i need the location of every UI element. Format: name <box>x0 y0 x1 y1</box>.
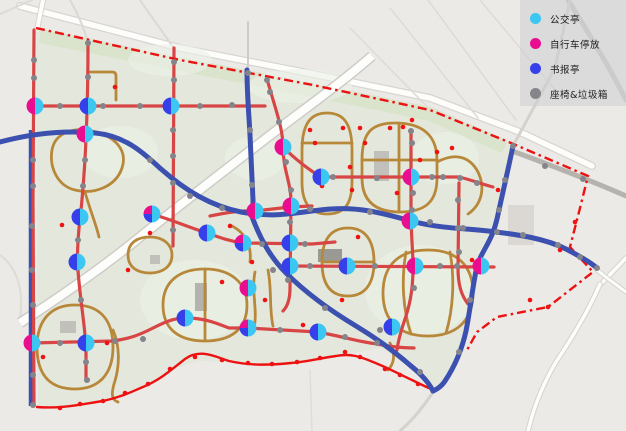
bench-trash-dot <box>409 207 415 213</box>
bench-trash-dot <box>437 263 443 269</box>
bicycle-parking-dot <box>246 361 251 366</box>
bench-trash-dot <box>30 157 36 163</box>
bench-trash-dot <box>170 127 176 133</box>
map-legend: 公交亭 自行车停放 书报亭 座椅&垃圾箱 <box>520 0 626 106</box>
bench-trash-dot <box>267 89 273 95</box>
park-facilities-map-page: 公交亭 自行车停放 书报亭 座椅&垃圾箱 <box>0 0 626 431</box>
bench-trash-dot <box>457 175 463 181</box>
bicycle-parking-icon <box>530 38 541 49</box>
bench-trash-dot <box>75 237 81 243</box>
bench-trash-dot <box>455 197 461 203</box>
bicycle-parking-dot <box>450 146 455 151</box>
bench-trash-dot <box>170 180 176 186</box>
bench-trash-dot <box>410 190 416 196</box>
facility-marker-bc[interactable] <box>384 319 401 336</box>
bicycle-parking-dot <box>435 150 440 155</box>
bicycle-parking-dot <box>146 382 151 387</box>
bicycle-parking-dot <box>123 391 128 396</box>
bicycle-parking-dot <box>295 360 300 365</box>
facility-marker-bc[interactable] <box>313 169 330 186</box>
bench-trash-dot <box>249 182 255 188</box>
bench-trash-dot <box>322 305 328 311</box>
park-field <box>128 44 212 76</box>
bench-trash-dot <box>84 377 90 383</box>
facility-marker-bc[interactable] <box>163 98 180 115</box>
bench-trash-dot <box>30 402 36 408</box>
bicycle-parking-dot <box>313 141 318 146</box>
bench-trash-dot <box>78 297 84 303</box>
bicycle-parking-dot <box>573 220 578 225</box>
bench-trash-dot <box>307 263 313 269</box>
bicycle-parking-dot <box>270 362 275 367</box>
bicycle-parking-dot <box>558 248 563 253</box>
facility-marker-bc[interactable] <box>72 209 89 226</box>
bicycle-parking-dot <box>363 141 368 146</box>
bench-trash-dot <box>580 176 586 182</box>
bicycle-parking-dot <box>398 373 403 378</box>
bicycle-parking-dot <box>168 367 173 372</box>
bicycle-parking-dot <box>263 298 268 303</box>
bench-trash-dot <box>30 302 36 308</box>
legend-label: 公交亭 <box>550 12 580 26</box>
bicycle-parking-dot <box>358 126 363 131</box>
bench-trash-dot <box>494 229 500 235</box>
bicycle-parking-dot <box>220 358 225 363</box>
building <box>150 255 160 264</box>
bench-trash-dot <box>429 174 435 180</box>
bench-trash-icon <box>530 88 541 99</box>
bench-trash-dot <box>456 249 462 255</box>
bench-trash-dot <box>440 174 446 180</box>
bench-trash-dot <box>367 209 373 215</box>
bench-trash-dot <box>409 140 415 146</box>
legend-label: 自行车停放 <box>550 37 600 51</box>
bench-trash-dot <box>520 232 526 238</box>
bench-trash-dot <box>283 159 289 165</box>
facility-marker-bc[interactable] <box>282 258 299 275</box>
bicycle-parking-dot <box>220 280 225 285</box>
bench-trash-dot <box>374 340 380 346</box>
bench-trash-dot <box>29 223 35 229</box>
bench-trash-dot <box>264 77 270 83</box>
bench-trash-dot <box>577 254 583 260</box>
bicycle-parking-dot <box>341 126 346 131</box>
bench-trash-dot <box>374 175 380 181</box>
facility-marker-mc[interactable] <box>473 258 490 275</box>
legend-item-newsstand: 书报亭 <box>530 56 626 81</box>
bicycle-parking-dot <box>343 350 348 355</box>
bench-trash-dot <box>100 103 106 109</box>
bench-trash-dot <box>171 77 177 83</box>
facility-marker-mc[interactable] <box>240 280 257 297</box>
bicycle-parking-dot <box>395 191 400 196</box>
legend-label: 座椅&垃圾箱 <box>550 87 608 101</box>
bench-trash-dot <box>302 241 308 247</box>
bench-trash-dot <box>456 349 462 355</box>
bench-trash-dot <box>330 174 336 180</box>
bicycle-parking-dot <box>301 323 306 328</box>
bus-kiosk-icon <box>530 13 541 24</box>
bicycle-parking-dot <box>383 367 388 372</box>
bicycle-parking-dot <box>418 158 423 163</box>
facility-marker-mbc[interactable] <box>240 320 257 337</box>
bench-trash-dot <box>460 225 466 231</box>
bicycle-parking-dot <box>340 298 345 303</box>
bicycle-parking-dot <box>101 399 106 404</box>
legend-item-bicycle-parking: 自行车停放 <box>530 31 626 56</box>
bench-trash-dot <box>247 127 253 133</box>
building <box>60 321 76 333</box>
bench-trash-dot <box>29 267 35 273</box>
facility-marker-mc[interactable] <box>77 126 94 143</box>
bicycle-parking-dot <box>193 355 198 360</box>
facility-marker-mc[interactable] <box>275 139 292 156</box>
bench-trash-dot <box>377 327 383 333</box>
bench-trash-dot <box>147 157 153 163</box>
tan-path <box>254 272 256 328</box>
facility-marker-mc[interactable] <box>403 169 420 186</box>
bench-trash-dot <box>342 334 348 340</box>
bicycle-parking-dot <box>356 235 361 240</box>
facility-marker-bc[interactable] <box>80 98 97 115</box>
bench-trash-dot <box>411 285 417 291</box>
bicycle-parking-dot <box>528 298 533 303</box>
bicycle-parking-dot <box>78 402 83 407</box>
bicycle-parking-dot <box>388 126 393 131</box>
facility-marker-mc[interactable] <box>24 335 41 352</box>
bicycle-parking-dot <box>350 188 355 193</box>
legend-item-bus-kiosk: 公交亭 <box>530 6 626 31</box>
bench-trash-dot <box>372 263 378 269</box>
bench-trash-dot <box>467 297 473 303</box>
bicycle-parking-dot <box>348 165 353 170</box>
bicycle-parking-dot <box>410 118 415 123</box>
bench-trash-dot <box>259 241 265 247</box>
bench-trash-dot <box>277 327 283 333</box>
bench-trash-dot <box>30 183 36 189</box>
facility-marker-mc[interactable] <box>247 203 264 220</box>
facility-marker-mc[interactable] <box>407 258 424 275</box>
facility-marker-bc[interactable] <box>339 258 356 275</box>
facility-marker-bc[interactable] <box>282 235 299 252</box>
facility-marker-bc[interactable] <box>69 254 86 271</box>
legend-label: 书报亭 <box>550 62 580 76</box>
red-road <box>288 266 494 267</box>
bicycle-parking-dot <box>126 268 131 273</box>
bench-trash-dot <box>510 143 516 149</box>
bench-trash-dot <box>417 369 423 375</box>
bench-trash-dot <box>219 205 225 211</box>
bicycle-parking-dot <box>401 125 406 130</box>
facility-marker-bc[interactable] <box>177 310 194 327</box>
bench-trash-dot <box>427 219 433 225</box>
facility-marker-bc[interactable] <box>310 324 327 341</box>
bench-trash-dot <box>287 219 293 225</box>
bench-trash-dot <box>82 157 88 163</box>
bicycle-parking-dot <box>60 223 65 228</box>
bench-trash-dot <box>85 74 91 80</box>
bench-trash-dot <box>555 242 561 248</box>
bench-trash-dot <box>454 263 460 269</box>
bicycle-parking-dot <box>546 305 551 310</box>
newsstand-icon <box>530 63 541 74</box>
bench-trash-dot <box>112 338 118 344</box>
bench-trash-dot <box>307 206 313 212</box>
bench-trash-dot <box>31 75 37 81</box>
facility-marker-bc[interactable] <box>199 225 216 242</box>
bicycle-parking-dot <box>58 406 63 411</box>
bench-trash-dot <box>542 163 548 169</box>
bench-trash-dot <box>594 265 600 271</box>
bench-trash-dot <box>170 153 176 159</box>
bicycle-parking-dot <box>416 382 421 387</box>
bench-trash-dot <box>31 57 37 63</box>
bicycle-parking-dot <box>470 258 475 263</box>
bench-trash-dot <box>171 59 177 65</box>
bicycle-parking-dot <box>308 128 313 133</box>
bench-trash-dot <box>502 177 508 183</box>
bicycle-parking-dot <box>228 224 233 229</box>
bicycle-parking-dot <box>113 85 118 90</box>
bicycle-parking-dot <box>250 260 255 265</box>
bench-trash-dot <box>57 340 63 346</box>
bench-trash-dot <box>276 119 282 125</box>
bench-trash-dot <box>137 103 143 109</box>
bench-trash-dot <box>85 40 91 46</box>
bench-trash-dot <box>170 227 176 233</box>
bench-trash-dot <box>229 102 235 108</box>
facility-marker-mc[interactable] <box>27 98 44 115</box>
legend-item-bench-trash: 座椅&垃圾箱 <box>530 81 626 106</box>
bench-trash-dot <box>496 207 502 213</box>
bicycle-parking-dot <box>358 355 363 360</box>
bench-trash-dot <box>30 372 36 378</box>
bench-trash-dot <box>140 336 146 342</box>
facility-marker-mc[interactable] <box>402 213 419 230</box>
bicycle-parking-dot <box>105 341 110 346</box>
bicycle-parking-dot <box>148 231 153 236</box>
facility-marker-mbc[interactable] <box>144 206 161 223</box>
bench-trash-dot <box>474 180 480 186</box>
facility-marker-mbc[interactable] <box>235 235 252 252</box>
bench-trash-dot <box>245 70 251 76</box>
bench-trash-dot <box>197 103 203 109</box>
facility-marker-mc[interactable] <box>283 198 300 215</box>
bicycle-parking-dot <box>496 188 501 193</box>
facility-marker-bc[interactable] <box>78 335 95 352</box>
bicycle-parking-dot <box>318 356 323 361</box>
bench-trash-dot <box>57 103 63 109</box>
bench-trash-dot <box>285 277 291 283</box>
bench-trash-dot <box>83 359 89 365</box>
bench-trash-dot <box>270 267 276 273</box>
bench-trash-dot <box>288 187 294 193</box>
bench-trash-dot <box>408 128 414 134</box>
bench-trash-dot <box>80 183 86 189</box>
bench-trash-dot <box>187 193 193 199</box>
bicycle-parking-dot <box>41 355 46 360</box>
